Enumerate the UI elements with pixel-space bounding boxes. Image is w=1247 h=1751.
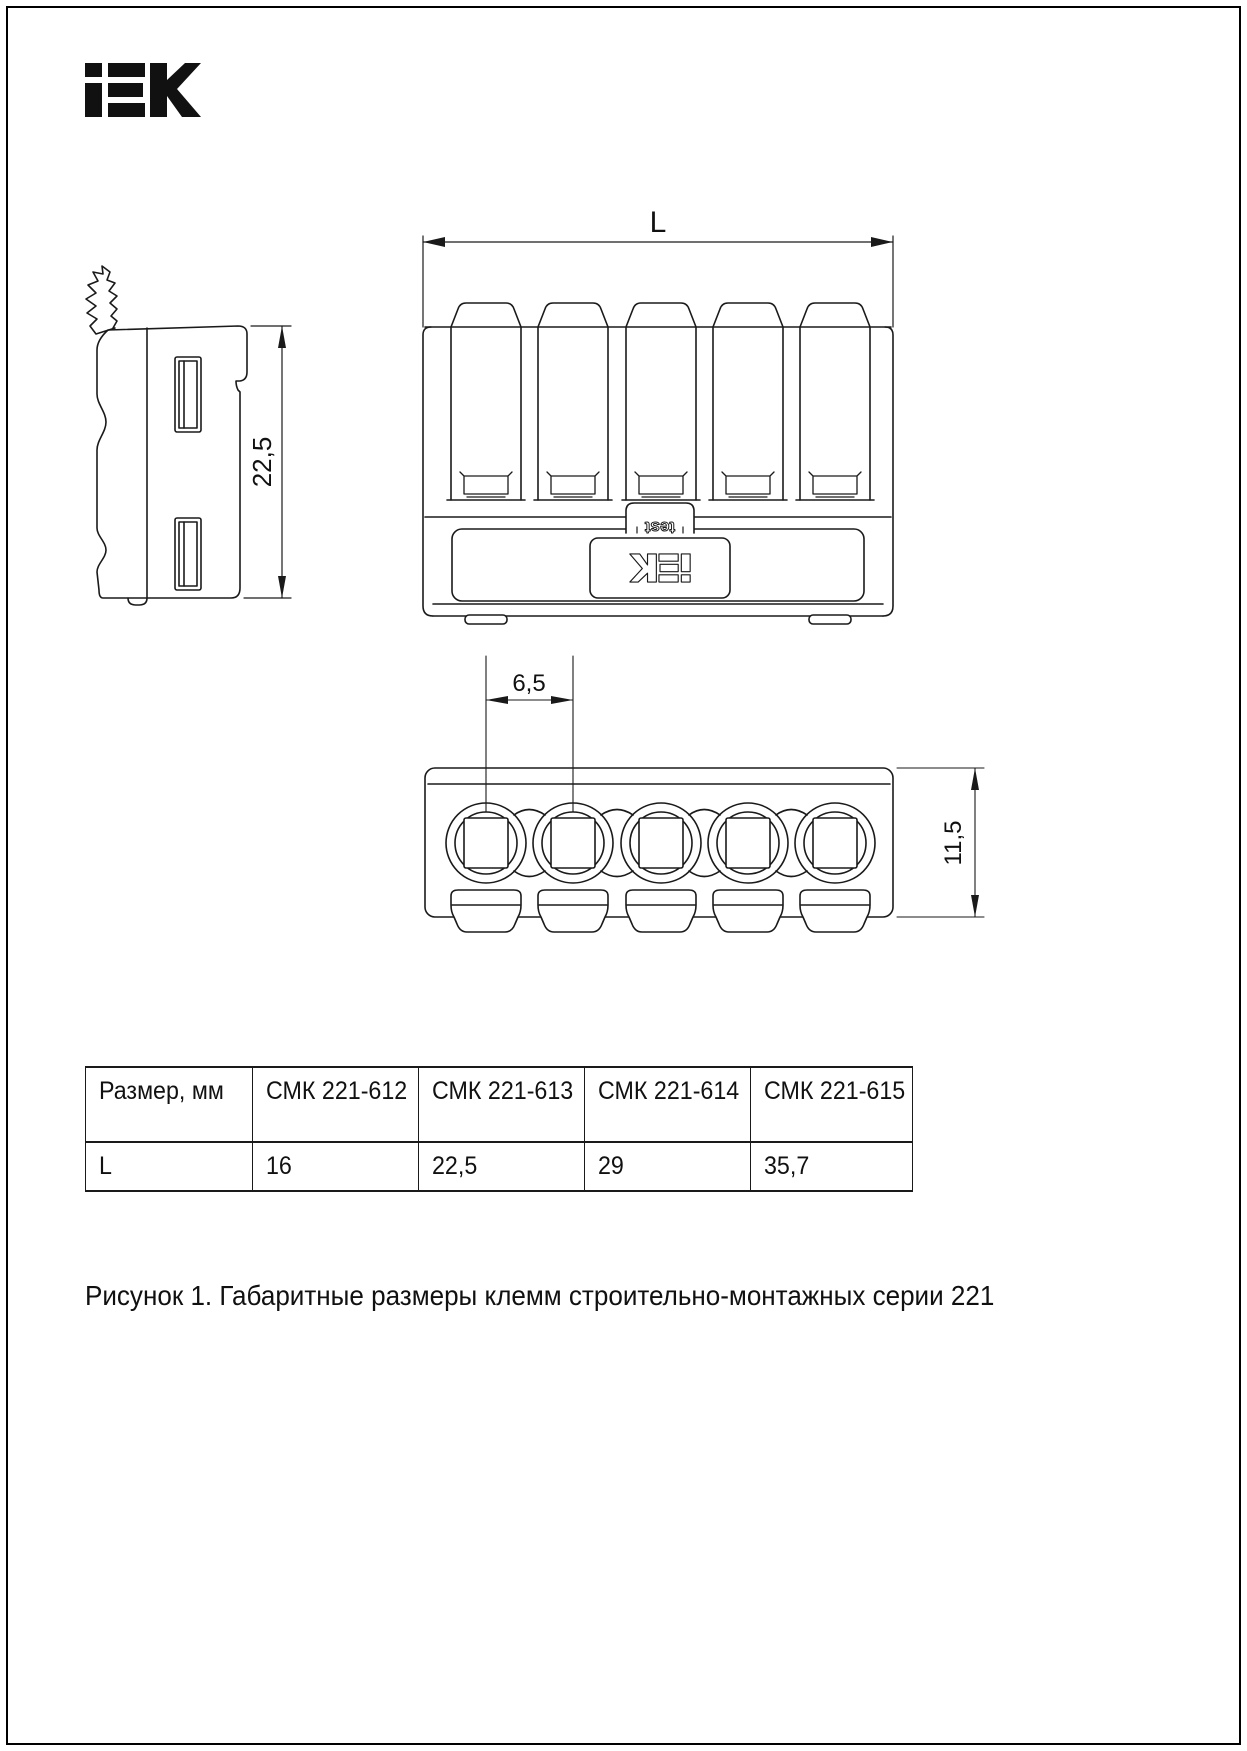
- front-view: L: [423, 206, 893, 624]
- cell-dim-name: L: [86, 1142, 253, 1191]
- table-header-row: Размер, мм СМК 221-612 СМК 221-613 СМК 2…: [86, 1067, 913, 1142]
- col-header-smk-612: СМК 221-612: [253, 1067, 419, 1142]
- side-view: 22,5: [86, 266, 291, 605]
- cell-value-612: 16: [253, 1142, 419, 1191]
- arrowhead: [278, 326, 286, 348]
- col-header-smk-613: СМК 221-613: [419, 1067, 585, 1142]
- dim-label-bottom-height: 11,5: [940, 821, 967, 866]
- test-label: test: [645, 518, 676, 537]
- cell-value-615: 35,7: [751, 1142, 913, 1191]
- lever-squiggle: [86, 266, 117, 334]
- technical-drawing: 22,5 L: [0, 0, 1247, 1751]
- dim-label-pitch: 6,5: [512, 670, 545, 697]
- cell-value-613: 22,5: [419, 1142, 585, 1191]
- table-row: L 16 22,5 29 35,7: [86, 1142, 913, 1191]
- bottom-view: 6,5: [425, 656, 984, 932]
- col-header-size: Размер, мм: [86, 1067, 253, 1142]
- arrowhead: [278, 576, 286, 598]
- figure-caption: Рисунок 1. Габаритные размеры клемм стро…: [85, 1280, 1063, 1312]
- document-page: 22,5 L: [0, 0, 1247, 1751]
- cell-value-614: 29: [585, 1142, 751, 1191]
- col-header-smk-614: СМК 221-614: [585, 1067, 751, 1142]
- dimensions-table: Размер, мм СМК 221-612 СМК 221-613 СМК 2…: [85, 1066, 913, 1192]
- dim-label-length: L: [650, 206, 667, 239]
- col-header-smk-615: СМК 221-615: [751, 1067, 913, 1142]
- dim-label-side-height: 22,5: [247, 437, 277, 488]
- iek-logo: [85, 63, 201, 117]
